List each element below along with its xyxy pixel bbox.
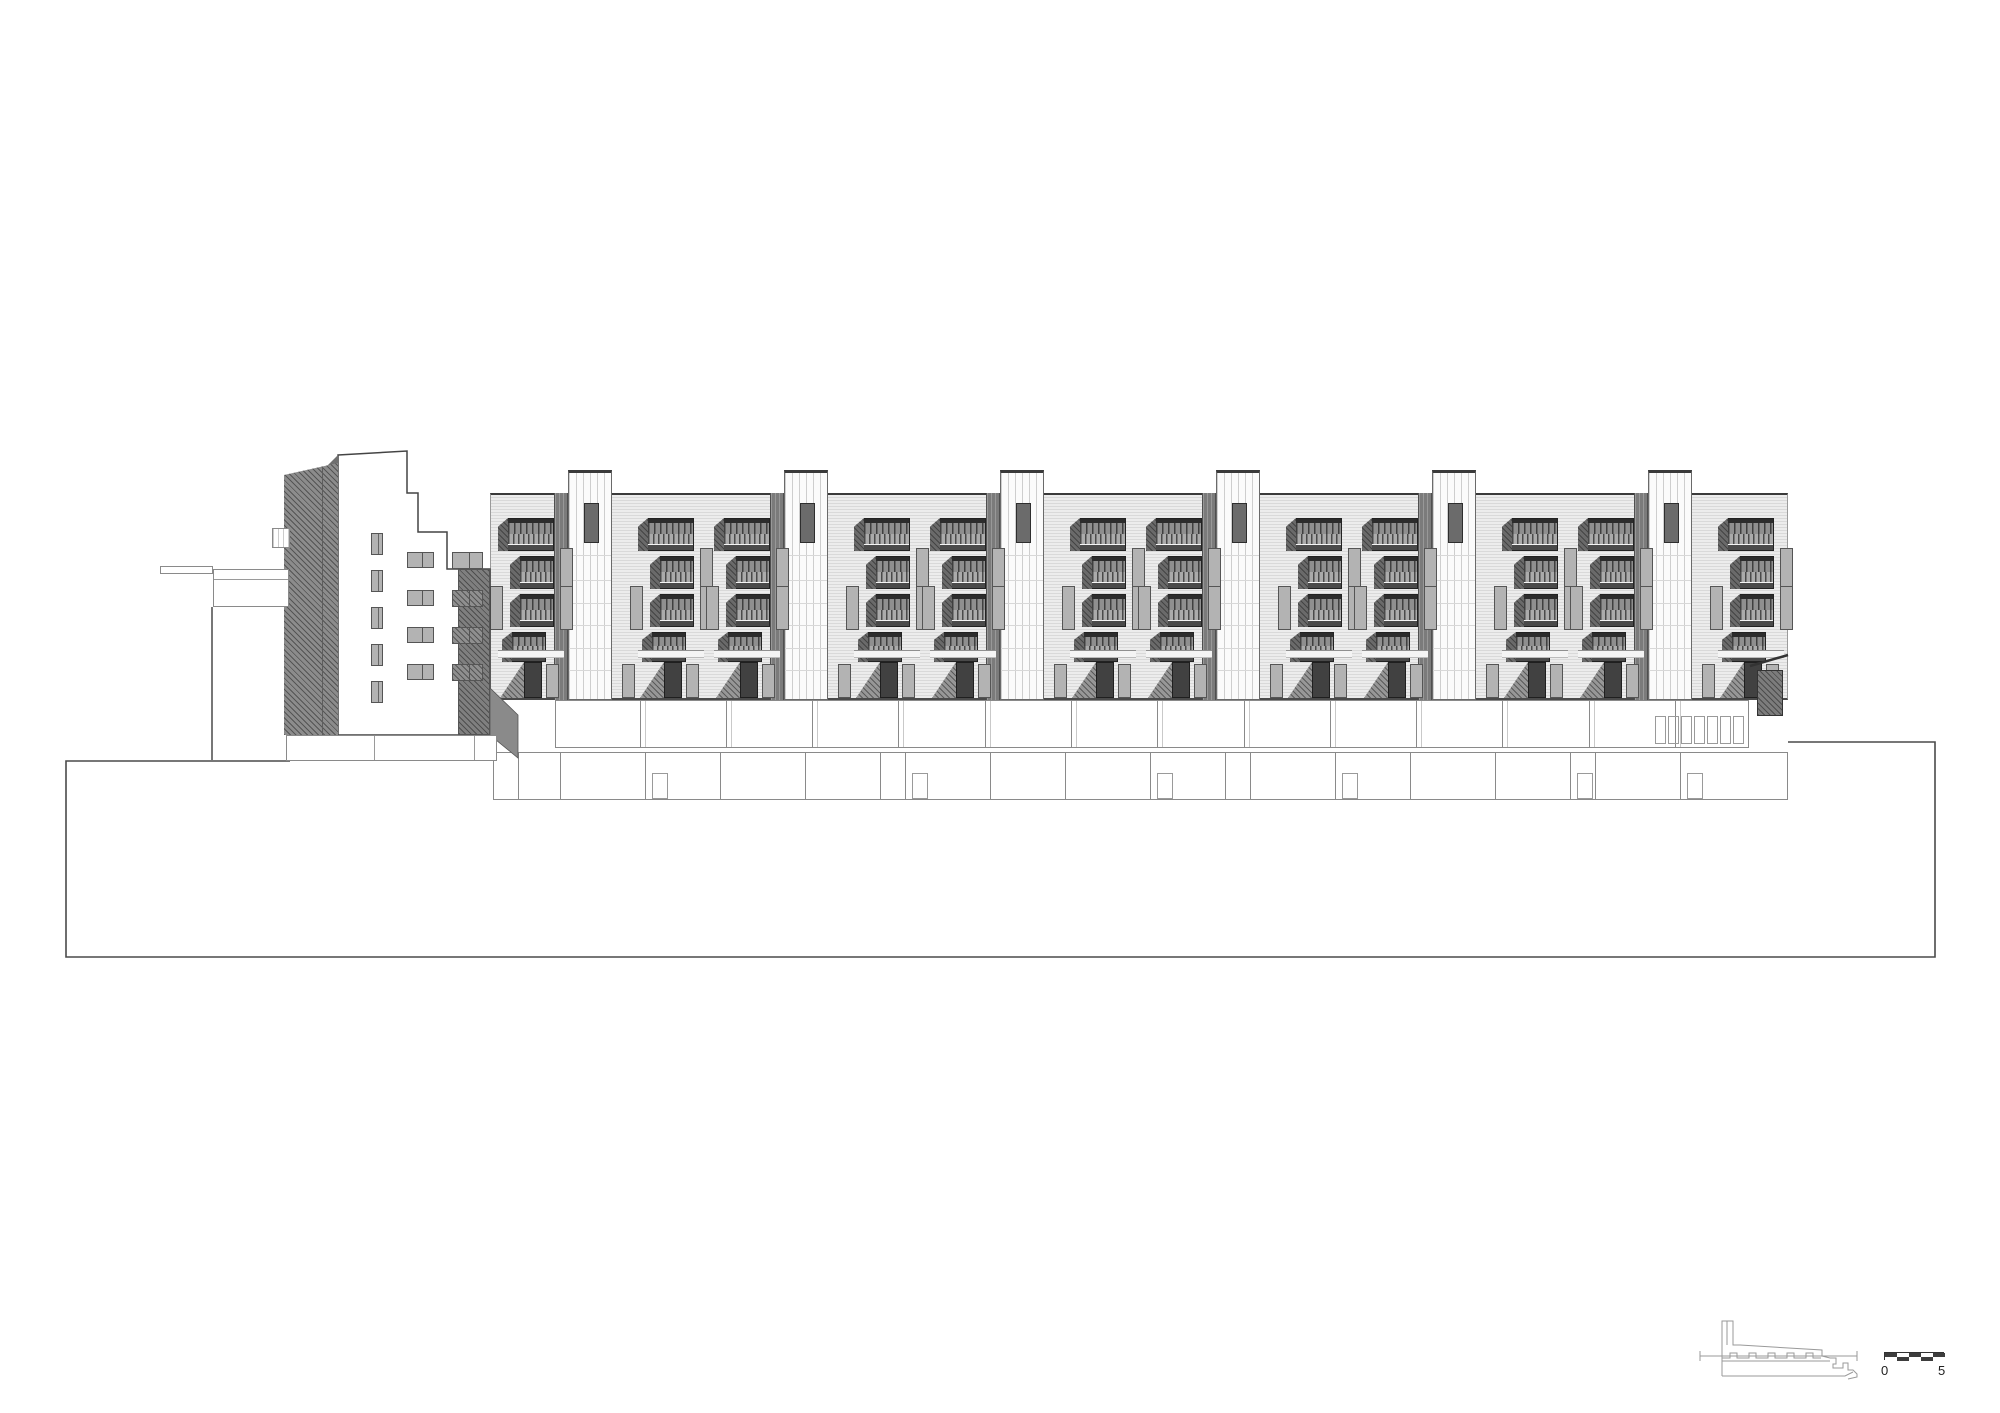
scale-label-zero: 0 — [1881, 1363, 1888, 1378]
scale-bar-segment — [1933, 1357, 1945, 1361]
scale-label-five: 5 — [1938, 1363, 1945, 1378]
scale-bar-segment — [1921, 1357, 1933, 1361]
scale-bar-segment — [1885, 1357, 1897, 1361]
key-plan — [0, 0, 2000, 1413]
elevation-drawing-page: 0 5 — [0, 0, 2000, 1413]
scale-bar-segment — [1897, 1357, 1909, 1361]
scale-bar-segment — [1909, 1357, 1921, 1361]
scale-bar — [1884, 1352, 1944, 1360]
